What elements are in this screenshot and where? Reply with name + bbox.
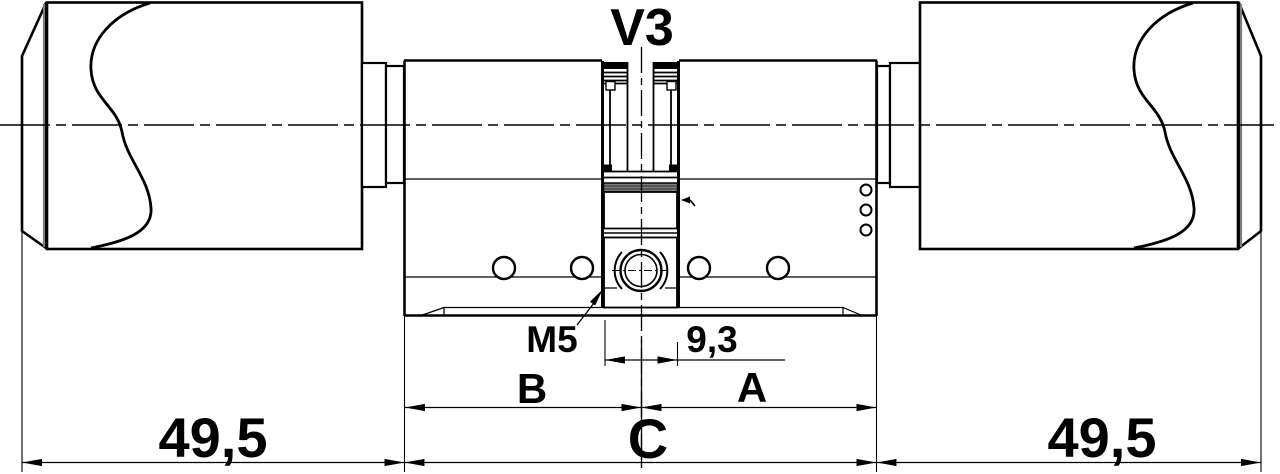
slot-notch-left — [606, 82, 615, 91]
hole-right-outer — [767, 257, 789, 279]
slot-foot-left — [604, 165, 612, 172]
arrow — [405, 459, 425, 466]
reference-marker-tail — [690, 200, 695, 206]
right-knob-body — [920, 3, 1238, 250]
slot-foot-right — [669, 165, 677, 172]
slot-notch-right — [667, 82, 676, 91]
clamp-bar-right — [654, 62, 678, 69]
arrow — [405, 404, 425, 411]
arrow — [857, 459, 877, 466]
slot-walls — [610, 62, 671, 172]
label-v3: V3 — [610, 0, 674, 57]
arrow — [385, 459, 405, 466]
hole-left-inner — [571, 257, 593, 279]
label-knob-right-length: 49,5 — [1048, 406, 1157, 469]
arrow — [658, 356, 678, 363]
hole-right-inner — [688, 257, 710, 279]
clamp-bar-left — [604, 62, 628, 69]
label-a: A — [737, 364, 767, 411]
arrow — [1241, 459, 1261, 466]
arrow — [605, 356, 625, 363]
cam-ring-band — [604, 183, 678, 192]
reference-marker-arrow — [681, 197, 690, 204]
cam-section — [603, 61, 696, 308]
label-cam-width: 9,3 — [686, 319, 737, 360]
arrow — [857, 404, 877, 411]
arrow — [877, 459, 897, 466]
label-c: C — [628, 407, 668, 470]
left-thumbturn-knob — [22, 3, 362, 250]
coupling-box-upper — [604, 192, 677, 229]
pin-dot-2 — [861, 205, 872, 216]
slot-closure-lines — [603, 172, 678, 178]
label-b: B — [517, 365, 547, 412]
arrow — [22, 459, 42, 466]
pin-dot-1 — [861, 185, 872, 196]
pin-dot-3 — [861, 225, 872, 236]
label-knob-left-length: 49,5 — [159, 406, 268, 469]
label-m5: M5 — [526, 319, 577, 360]
hole-left-outer — [493, 257, 515, 279]
right-thumbturn-knob — [920, 3, 1261, 250]
left-knob-body — [47, 3, 362, 250]
m5-leader-line — [577, 303, 594, 325]
technical-drawing-canvas: V3 M5 9,3 B A C 49,5 49,5 — [0, 0, 1280, 474]
technical-drawing-page: V3 M5 9,3 B A C 49,5 49,5 — [0, 0, 1280, 474]
